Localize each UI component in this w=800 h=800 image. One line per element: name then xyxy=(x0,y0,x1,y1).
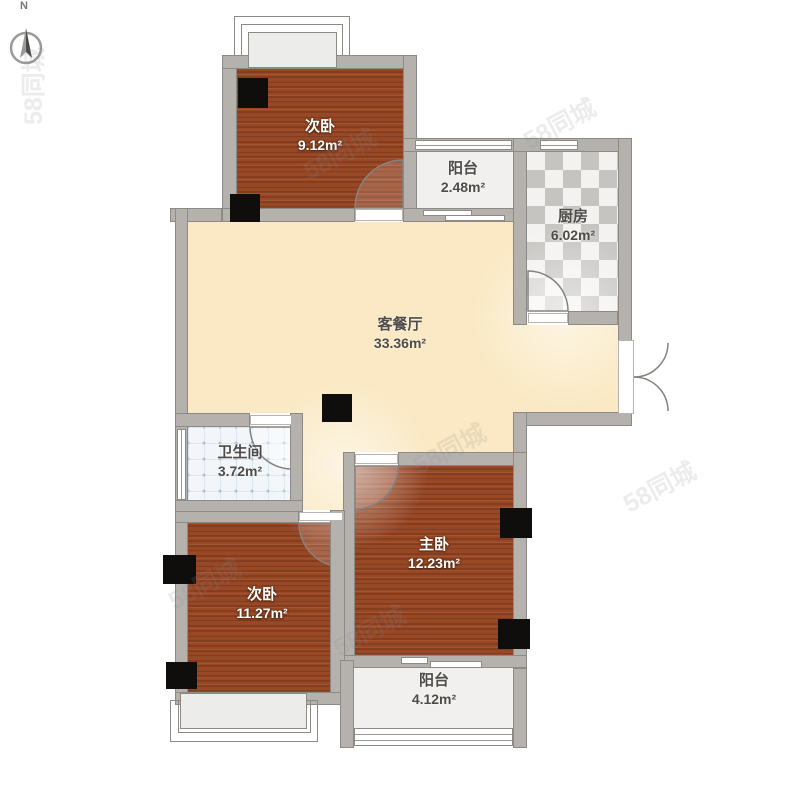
room-area: 33.36m² xyxy=(374,335,426,353)
column xyxy=(230,194,260,222)
column xyxy=(322,394,352,422)
sliding-door xyxy=(401,657,428,664)
wall xyxy=(568,311,618,325)
room-label-balcony-top: 阳台 2.48m² xyxy=(405,160,521,196)
column xyxy=(498,619,530,649)
room-name: 卫生间 xyxy=(217,444,262,463)
room-name: 阳台 xyxy=(419,672,449,691)
entry-door-swing-bottom xyxy=(634,377,668,411)
window xyxy=(415,140,512,150)
room-name: 厨房 xyxy=(558,208,588,227)
room-label-bathroom: 卫生间 3.72m² xyxy=(180,444,300,480)
room-label-bedroom-master: 主卧 12.23m² xyxy=(364,536,504,572)
floor-plan: 次卧 9.12m² 阳台 2.48m² 厨房 6.02m² 客餐厅 33.36m… xyxy=(0,0,800,800)
room-name: 客餐厅 xyxy=(377,316,422,335)
room-area: 3.72m² xyxy=(218,463,262,481)
room-area: 12.23m² xyxy=(408,555,460,573)
room-name: 次卧 xyxy=(247,586,277,605)
wall xyxy=(175,413,250,427)
sliding-door xyxy=(430,661,482,668)
room-label-bedroom-top: 次卧 9.12m² xyxy=(250,118,390,154)
room-area: 6.02m² xyxy=(551,227,595,245)
room-area: 11.27m² xyxy=(236,605,287,623)
column xyxy=(163,555,196,584)
room-area: 9.12m² xyxy=(298,137,342,155)
room-area: 4.12m² xyxy=(412,691,456,709)
bay-window-sill xyxy=(180,693,307,729)
door-opening xyxy=(250,415,292,425)
column xyxy=(166,662,197,689)
wall xyxy=(513,412,527,456)
room-area: 2.48m² xyxy=(441,179,485,197)
entry-door-swing-top xyxy=(634,343,668,377)
door-opening xyxy=(355,454,398,464)
window xyxy=(540,140,578,150)
bay-window-sill xyxy=(248,32,337,68)
entry-door-frame xyxy=(618,340,634,414)
door-swing-bedroom-top xyxy=(355,160,403,208)
wall xyxy=(340,660,354,748)
balcony-window-band xyxy=(354,728,513,746)
room-label-living: 客餐厅 33.36m² xyxy=(330,316,470,352)
door-swing-bedroom-master xyxy=(355,466,398,509)
door-opening xyxy=(299,512,343,521)
room-label-balcony-bottom: 阳台 4.12m² xyxy=(364,672,504,708)
door-opening xyxy=(528,313,568,323)
wall xyxy=(513,412,632,426)
wall xyxy=(398,452,527,466)
room-label-kitchen: 厨房 6.02m² xyxy=(515,208,631,244)
column xyxy=(500,508,532,538)
column xyxy=(238,78,268,108)
room-name: 阳台 xyxy=(448,160,478,179)
wall xyxy=(175,500,303,512)
door-swing-kitchen xyxy=(528,271,568,311)
compass-icon xyxy=(0,8,60,78)
room-name: 次卧 xyxy=(305,118,335,137)
room-name: 主卧 xyxy=(419,536,449,555)
door-opening xyxy=(355,209,403,221)
wall xyxy=(513,668,527,748)
room-label-bedroom-left: 次卧 11.27m² xyxy=(192,586,332,622)
sliding-door xyxy=(445,215,505,221)
